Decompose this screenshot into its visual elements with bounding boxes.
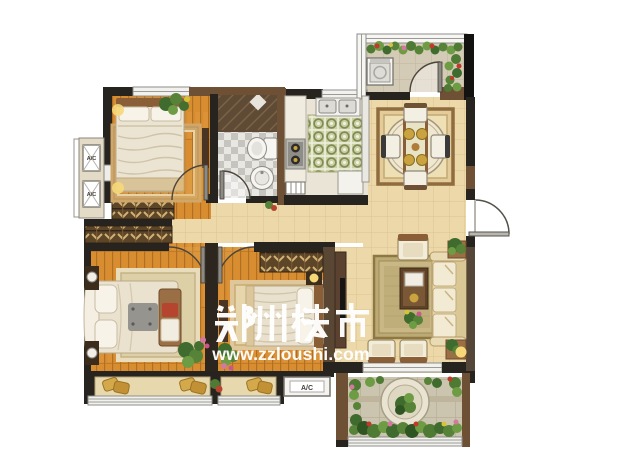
svg-text:A/C: A/C — [87, 156, 97, 162]
svg-text:A/C: A/C — [87, 192, 97, 198]
svg-text:A/C: A/C — [301, 385, 313, 392]
svg-text:www.zzloushi.com: www.zzloushi.com — [211, 344, 369, 364]
